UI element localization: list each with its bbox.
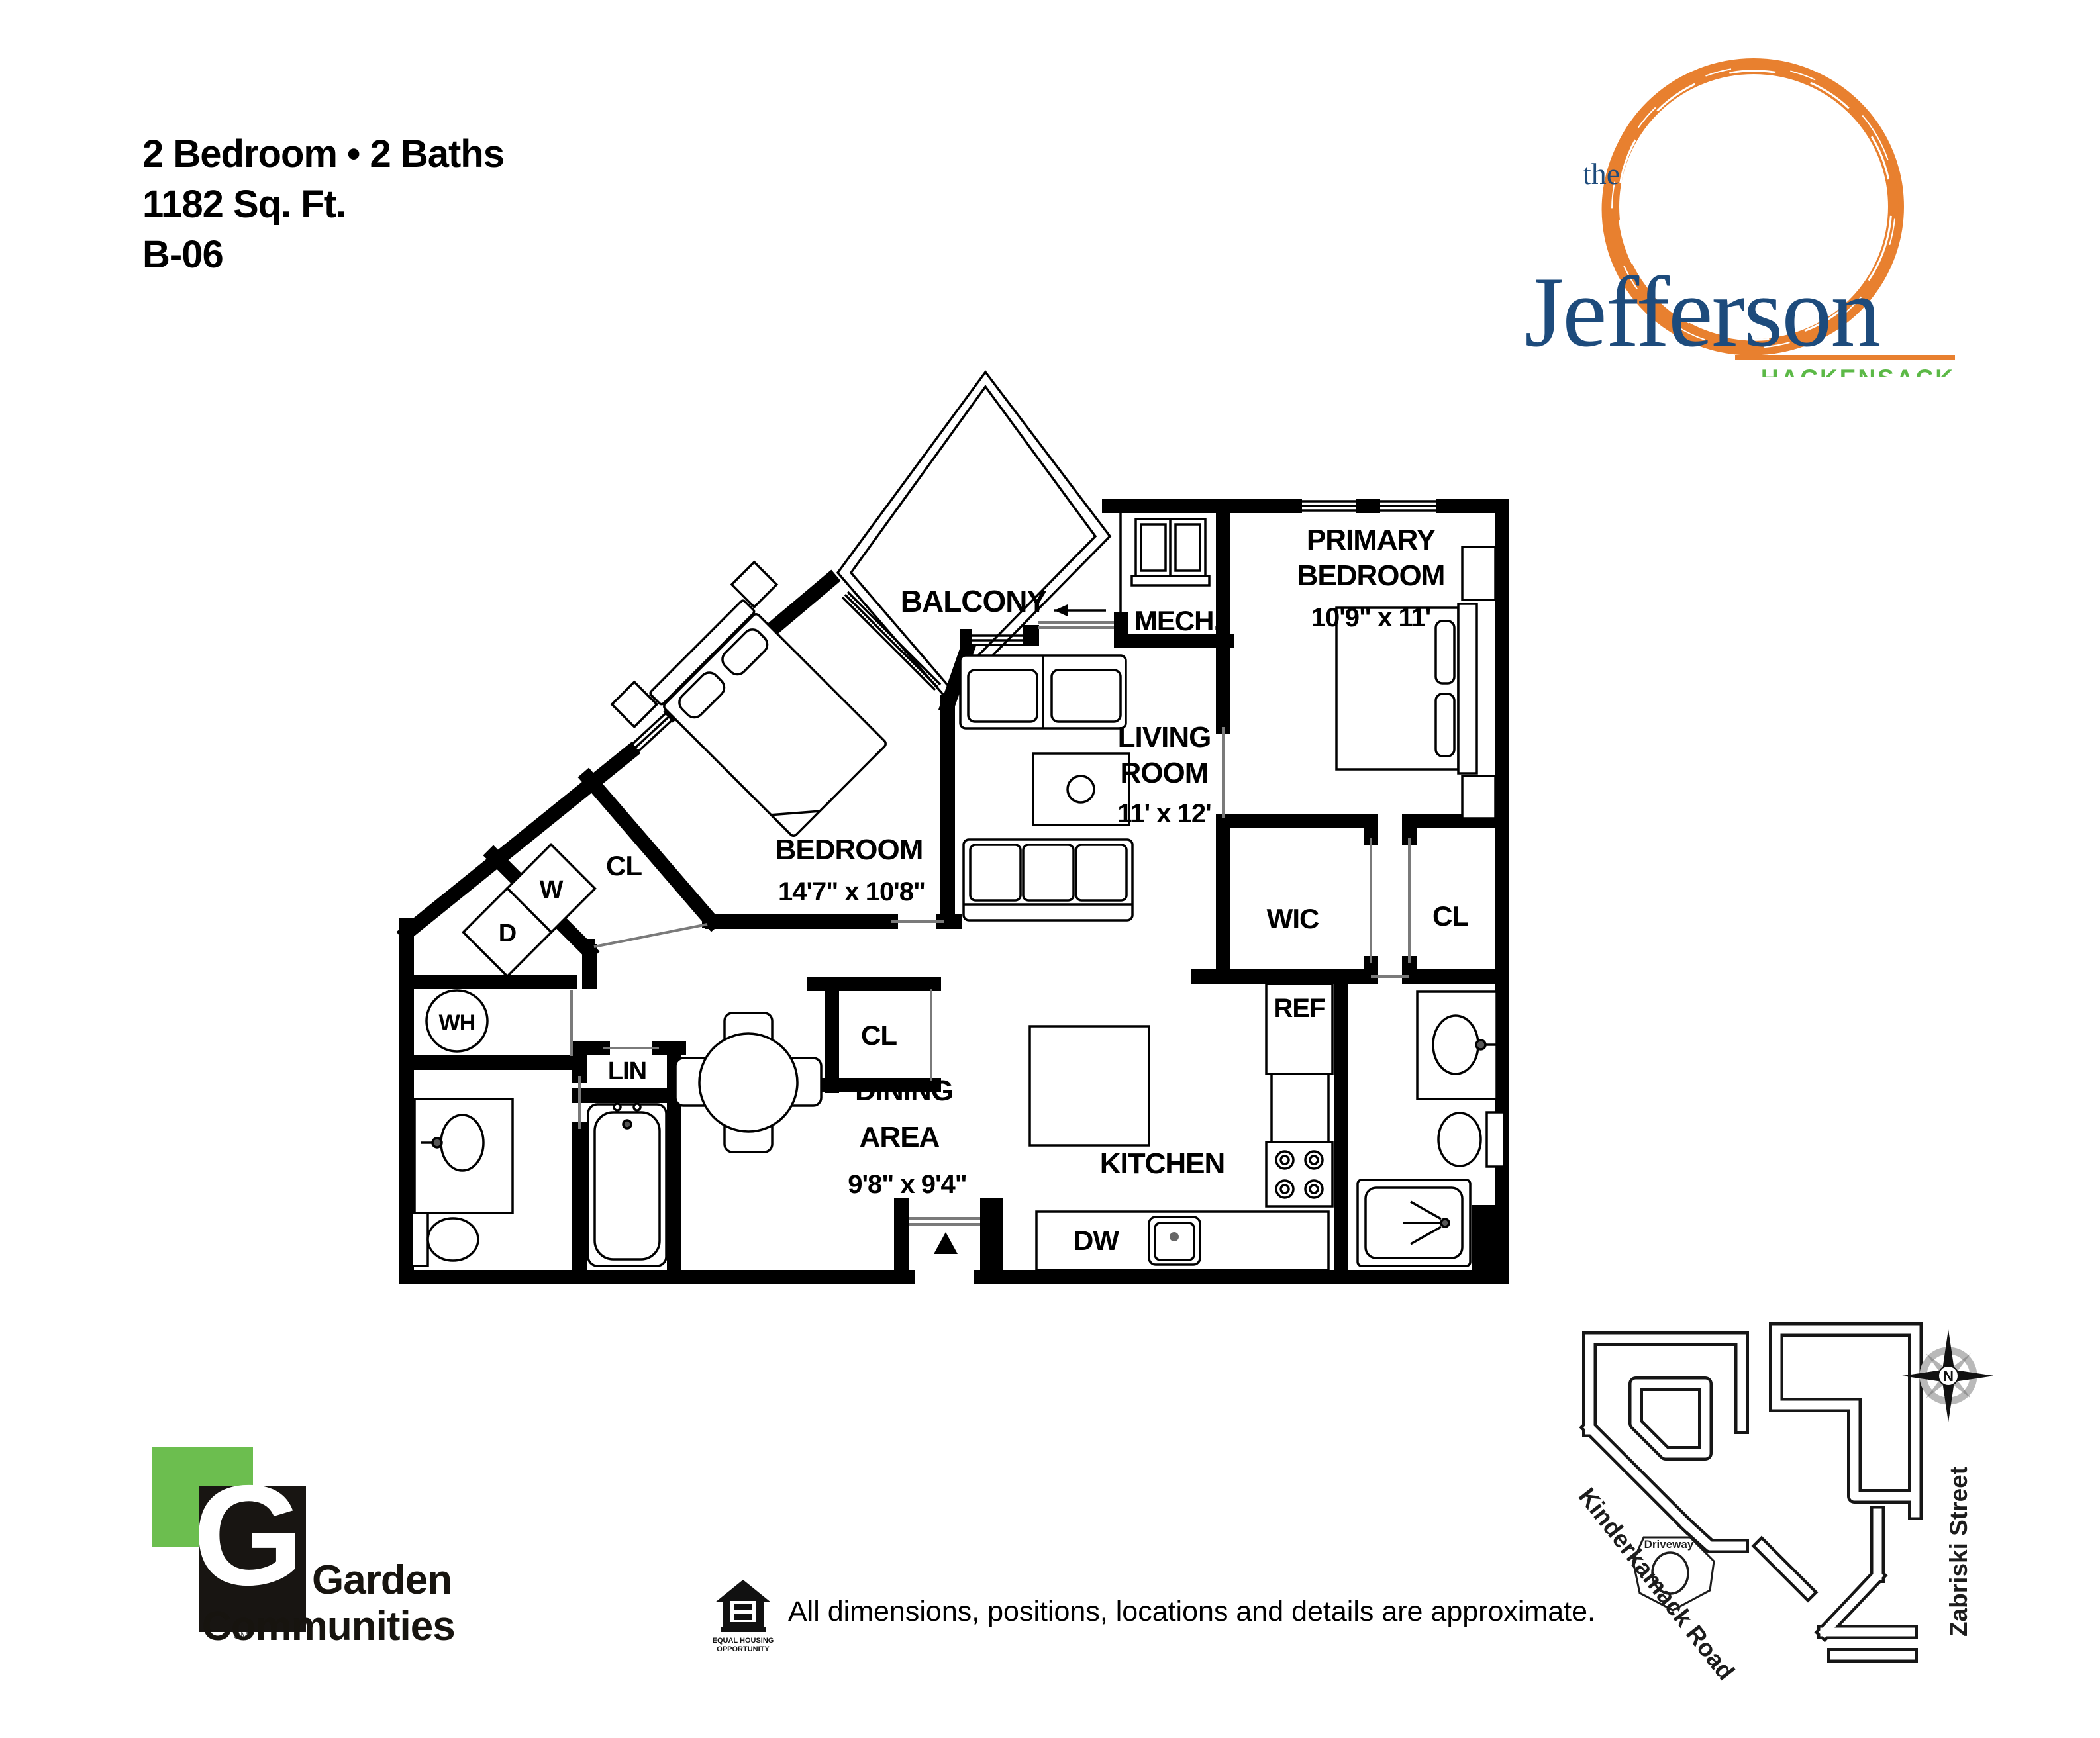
nightstand — [732, 562, 777, 607]
label-washer: W — [540, 876, 564, 904]
coffee-table — [1033, 753, 1129, 825]
range — [1266, 1142, 1332, 1206]
label-primary-dim: 10'9" x 11' — [1311, 603, 1430, 632]
label-dw: DW — [1074, 1225, 1119, 1256]
label-dryer: D — [499, 920, 516, 947]
brand-communities: Communities — [202, 1604, 455, 1649]
label-ref: REF — [1274, 994, 1325, 1023]
garden-communities-logo: G SM Garden Communities — [136, 1440, 533, 1665]
unit-type: 2 Bedroom • 2 Baths — [142, 129, 504, 179]
entry-arrow-icon — [934, 1232, 958, 1254]
label-living-dim: 11' x 12' — [1117, 799, 1211, 828]
logo-city: HACKENSACK — [1761, 365, 1955, 377]
label-dining-dim: 9'8" x 9'4" — [848, 1170, 966, 1199]
label-lin: LIN — [608, 1057, 646, 1085]
g-mark: G — [193, 1455, 303, 1615]
logo-the: the — [1583, 157, 1620, 191]
label-bedroom: BEDROOM — [775, 834, 923, 866]
mech-unit-icon — [1132, 519, 1209, 585]
floorplan-drawing: BALCONY MECH. PRIMARY BEDROOM 10'9" x 11… — [377, 344, 1543, 1291]
label-zabriski-street: Zabriski Street — [1945, 1467, 1972, 1637]
kitchen-sink — [1149, 1217, 1200, 1265]
eho-text-2: OPPORTUNITY — [717, 1645, 770, 1653]
jefferson-logo: the Jefferson HACKENSACK — [1517, 46, 1974, 377]
label-cl-dining: CL — [861, 1020, 897, 1051]
bathtub — [588, 1104, 666, 1266]
label-driveway: Driveway — [1644, 1538, 1694, 1551]
label-living-2: ROOM — [1121, 757, 1209, 789]
shower — [1358, 1180, 1470, 1266]
dining-set — [675, 1013, 821, 1152]
label-cl-hall: CL — [606, 850, 642, 881]
kitchen-island — [1030, 1026, 1149, 1145]
disclaimer-text: All dimensions, positions, locations and… — [788, 1596, 1595, 1628]
label-dining-2: AREA — [860, 1121, 940, 1153]
label-primary-1: PRIMARY — [1307, 524, 1436, 556]
hall-bath-vanity — [415, 1099, 513, 1213]
floorplan-sheet: 2 Bedroom • 2 Baths 1182 Sq. Ft. B-06 th… — [0, 0, 2100, 1738]
primary-bath-vanity — [1417, 992, 1497, 1099]
nightstand — [1462, 547, 1495, 600]
label-wic: WIC — [1267, 903, 1319, 934]
nightstand — [1462, 776, 1495, 818]
nightstand — [612, 682, 657, 727]
label-wh: WH — [439, 1010, 475, 1036]
label-cl-primary: CL — [1432, 900, 1468, 932]
label-primary-2: BEDROOM — [1297, 559, 1445, 592]
loveseat — [960, 655, 1126, 728]
equal-housing-logo: EQUAL HOUSING OPPORTUNITY — [710, 1577, 776, 1660]
label-kitchen: KITCHEN — [1100, 1147, 1225, 1180]
logo-name: Jefferson — [1525, 256, 1879, 367]
site-map: Driveway Kinderkamack Road Zabriski Stre… — [1543, 1298, 1993, 1695]
label-dining-1: DINING — [855, 1075, 953, 1107]
compass-n: N — [1943, 1368, 1954, 1384]
unit-number: B-06 — [142, 230, 504, 280]
label-balcony: BALCONY — [901, 584, 1047, 618]
primary-bath-toilet — [1438, 1112, 1504, 1167]
eho-text-1: EQUAL HOUSING — [713, 1637, 774, 1645]
label-living-1: LIVING — [1118, 721, 1211, 753]
logo-underline — [1735, 355, 1955, 360]
label-mech: MECH. — [1134, 605, 1221, 636]
label-kinderkamack-road: Kinderkamack Road — [1574, 1483, 1740, 1686]
counter — [1272, 1074, 1328, 1142]
hall-bath-toilet — [412, 1213, 478, 1266]
sofa — [964, 840, 1132, 920]
unit-summary: 2 Bedroom • 2 Baths 1182 Sq. Ft. B-06 — [142, 129, 504, 280]
unit-area: 1182 Sq. Ft. — [142, 179, 504, 230]
balcony-door-arrow — [1054, 604, 1106, 616]
brand-garden: Garden — [312, 1557, 452, 1603]
label-bedroom-dim: 14'7" x 10'8" — [778, 877, 925, 906]
buildings — [1589, 1329, 1915, 1655]
